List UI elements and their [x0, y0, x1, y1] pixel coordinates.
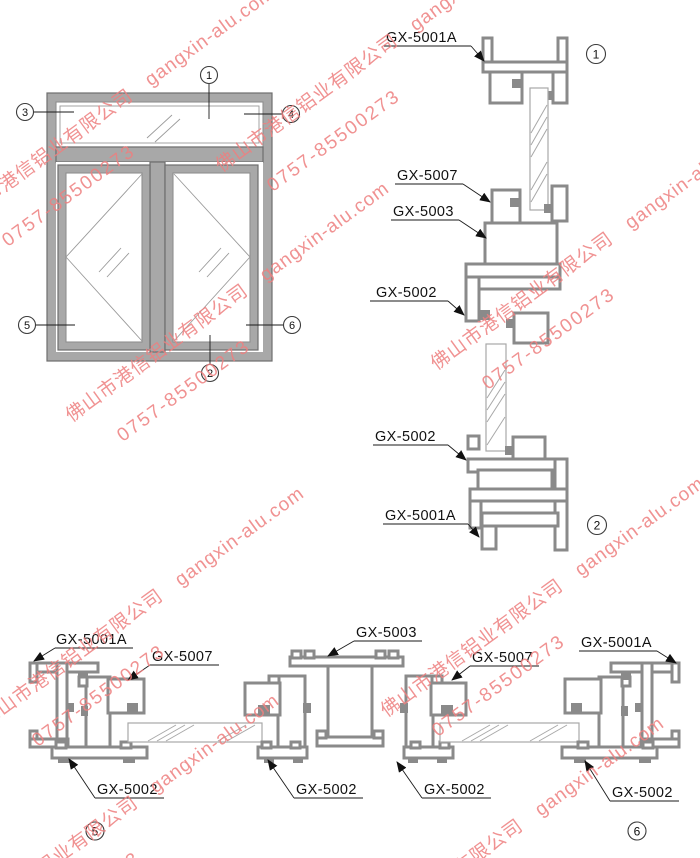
part-label: GX-5002 [397, 762, 491, 798]
part-label: GX-5007 [452, 650, 539, 680]
part-label: GX-5002 [268, 760, 363, 798]
svg-text:1: 1 [206, 70, 212, 82]
part-label: GX-5007 [395, 168, 490, 202]
svg-text:GX-5001A: GX-5001A [56, 632, 127, 648]
elevation-mullion [150, 162, 165, 352]
svg-text:2: 2 [594, 519, 601, 533]
svg-text:GX-5002: GX-5002 [612, 785, 673, 801]
part-label: GX-5001A [384, 30, 484, 61]
svg-text:4: 4 [288, 109, 294, 121]
part-label: GX-5001A [383, 508, 479, 537]
right-glass [440, 723, 579, 742]
section-callout-2: 2 [588, 516, 607, 535]
technical-drawing: 1 2 3 4 5 6 [0, 0, 700, 858]
window-elevation: 1 2 3 4 5 6 [17, 67, 301, 382]
lower-glass [486, 344, 506, 451]
svg-text:1: 1 [593, 48, 600, 62]
part-label: GX-5002 [370, 285, 464, 315]
svg-text:6: 6 [289, 320, 295, 332]
part-label: GX-5003 [391, 204, 486, 238]
center-mullion-profile [290, 651, 403, 746]
transom-assembly-profile [466, 186, 567, 343]
svg-text:GX-5001A: GX-5001A [385, 508, 456, 524]
svg-text:GX-5002: GX-5002 [296, 782, 357, 798]
svg-text:GX-5007: GX-5007 [472, 650, 533, 666]
svg-text:GX-5001A: GX-5001A [386, 30, 457, 46]
part-label: GX-5007 [128, 649, 219, 680]
svg-text:GX-5002: GX-5002 [375, 429, 436, 445]
elevation-transom [56, 147, 263, 162]
svg-text:3: 3 [22, 107, 28, 119]
svg-text:GX-5007: GX-5007 [397, 168, 458, 184]
center-left-sash-profile [245, 676, 311, 763]
svg-text:5: 5 [24, 320, 30, 332]
center-right-sash-profile [400, 676, 466, 763]
horizontal-section: GX-5001A GX-5007 GX-5003 GX-5007 GX-5001… [30, 625, 679, 840]
svg-text:5: 5 [92, 825, 99, 839]
section-callout-5: 5 [86, 822, 104, 840]
svg-text:GX-5003: GX-5003 [356, 625, 417, 641]
left-glass [128, 723, 262, 742]
elevation-right-glass [173, 173, 250, 342]
elevation-top-glass [56, 102, 263, 147]
section-callout-6: 6 [628, 822, 646, 840]
svg-text:GX-5002: GX-5002 [97, 782, 158, 798]
svg-text:GX-5003: GX-5003 [393, 204, 454, 220]
drawing-page: 1 2 3 4 5 6 [0, 0, 700, 858]
svg-text:GX-5002: GX-5002 [376, 285, 437, 301]
section-callout-1: 1 [587, 45, 606, 64]
svg-text:GX-5002: GX-5002 [424, 782, 485, 798]
svg-text:GX-5007: GX-5007 [152, 649, 213, 665]
part-label: GX-5001A [579, 635, 676, 663]
part-label: GX-5002 [585, 761, 679, 801]
svg-text:2: 2 [207, 368, 213, 380]
svg-text:6: 6 [634, 825, 641, 839]
part-label: GX-5002 [69, 759, 164, 798]
svg-text:GX-5001A: GX-5001A [581, 635, 652, 651]
elevation-left-glass [66, 173, 142, 342]
head-frame-profile [483, 38, 567, 103]
part-label: GX-5001A [34, 632, 133, 661]
part-label: GX-5002 [373, 429, 466, 460]
sill-assembly-profile [468, 436, 567, 550]
upper-glass [530, 88, 548, 210]
vertical-section: GX-5001A GX-5007 GX-5003 GX-5002 GX-5002… [370, 30, 607, 550]
